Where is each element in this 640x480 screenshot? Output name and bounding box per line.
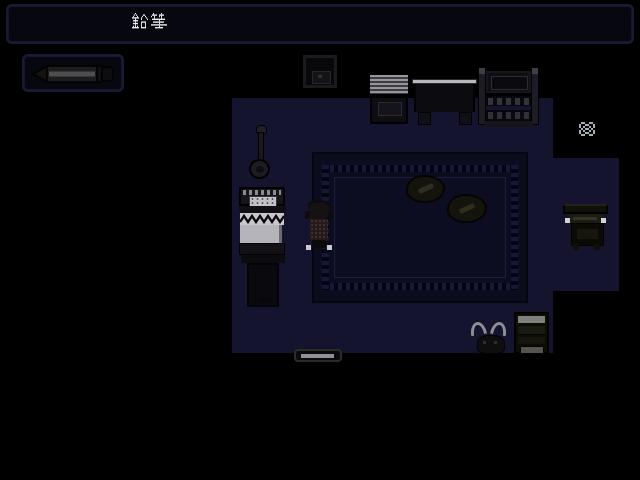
table-leg-right — [459, 112, 472, 125]
sparkle-icon — [579, 122, 595, 138]
bed-foot — [247, 263, 279, 307]
floor-lamp — [249, 125, 270, 179]
bed-headboard — [239, 187, 285, 206]
player-braid-right — [328, 211, 333, 219]
player-body — [310, 219, 328, 240]
dresser — [368, 73, 410, 124]
cat-ear-left — [469, 321, 487, 337]
chair-leg-left — [573, 244, 579, 250]
shelf-unit — [478, 66, 539, 127]
desk-top — [563, 204, 608, 214]
shelf-row-2 — [486, 110, 531, 121]
shelf-base — [484, 121, 533, 127]
shelf-post-right — [531, 67, 539, 125]
message-window — [6, 4, 634, 44]
bed-blanket-zigzag — [240, 213, 284, 225]
chair-leg-right — [594, 244, 600, 250]
wall-frame-inner — [312, 71, 331, 84]
dresser-top — [368, 73, 410, 96]
book-stack-top — [518, 316, 545, 323]
bed — [238, 186, 287, 312]
rug-border-pattern-right — [511, 165, 518, 290]
player-legs — [312, 240, 326, 248]
door-mat — [294, 349, 342, 362]
desk-knob-left — [565, 218, 570, 223]
desk-surface — [569, 214, 603, 223]
dresser-body — [370, 96, 408, 124]
message-text — [132, 13, 167, 24]
cat-body — [477, 335, 505, 354]
cat — [468, 318, 512, 354]
player-head — [309, 203, 329, 219]
cushion-left — [406, 175, 445, 203]
shelf-cabinet — [486, 71, 531, 93]
shelf-row-1 — [486, 96, 531, 106]
item-window — [22, 54, 124, 92]
rug-border-pattern-bottom — [322, 283, 518, 290]
bed-sheet — [240, 225, 282, 243]
pencil-icon — [31, 62, 117, 86]
game-viewport[interactable] — [0, 0, 640, 480]
table — [412, 79, 477, 123]
player-foot-right — [327, 245, 332, 250]
dresser-drawer — [378, 102, 402, 116]
lamp-base — [249, 159, 270, 179]
table-body — [414, 84, 475, 112]
cat-ear-right — [490, 321, 508, 337]
bed-blanket-dark — [239, 243, 285, 255]
table-leg-left — [418, 112, 431, 125]
cushion-right — [447, 194, 487, 223]
book-stack-row1 — [518, 326, 545, 335]
desk-chair — [563, 204, 608, 252]
book-stack-row2 — [518, 337, 545, 344]
book-stack — [514, 312, 549, 354]
shelf-post-left — [478, 67, 486, 125]
player-foot-left — [306, 245, 311, 250]
book-stack-bottom — [520, 346, 544, 354]
wall-frame — [303, 55, 337, 88]
player-character — [305, 199, 333, 253]
rug-border-pattern-top — [322, 165, 518, 172]
bed-frame-top — [239, 206, 286, 213]
player-braid-left — [305, 211, 310, 219]
chair-body — [571, 223, 604, 246]
bed-frame-bottom — [241, 255, 285, 263]
